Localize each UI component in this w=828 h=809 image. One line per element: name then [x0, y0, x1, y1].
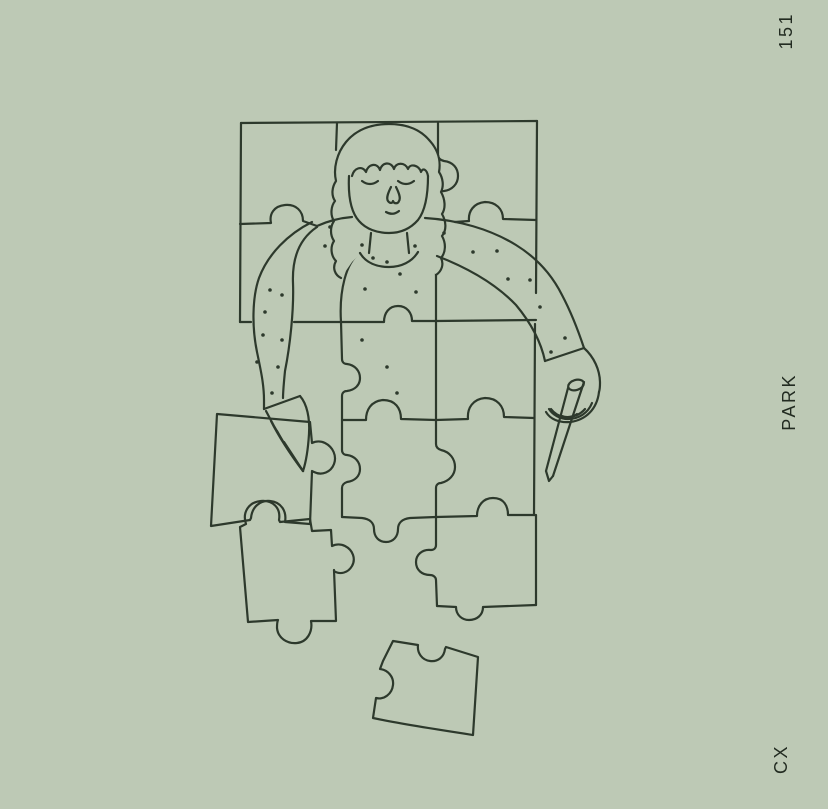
- left-arm-outer: [253, 222, 312, 409]
- pencil-shaft-left: [546, 388, 568, 471]
- lower-row-divider-knobs: [342, 498, 535, 542]
- park-label: PARK: [780, 373, 798, 431]
- page-number-label: 151: [777, 12, 795, 50]
- right-finger-4: [562, 414, 577, 417]
- puzzle-row-divider-left: [240, 205, 317, 226]
- left-arm-inner: [283, 227, 317, 398]
- piece-being-placed: [211, 414, 335, 526]
- left-finger-4: [284, 442, 303, 471]
- loose-puzzle-pieces: [211, 414, 478, 735]
- puzzle-illustration: [0, 0, 828, 809]
- puzzle-right-edge-lower: [534, 324, 535, 515]
- cx-monogram-label: CX: [772, 744, 790, 774]
- puzzle-middle-pieces: [341, 253, 536, 620]
- loose-piece-tilted: [373, 641, 478, 735]
- book-page: 151 PARK CX: [0, 0, 828, 809]
- middle-row-divider-knobs: [342, 398, 534, 420]
- right-arm-inner: [437, 256, 545, 361]
- right-hand-back: [584, 348, 600, 392]
- puzzle-left-edge: [240, 123, 241, 322]
- chest-row-divider-knob: [341, 306, 536, 322]
- puzzle-row-divider-right: [455, 202, 536, 222]
- pencil-tip: [546, 471, 553, 481]
- collar: [360, 252, 418, 267]
- bottom-right-piece-bottom-knob: [437, 605, 536, 620]
- puzzle-top-edge: [241, 121, 537, 123]
- bottom-right-piece-left-edge: [416, 517, 437, 606]
- puzzle-right-edge-upper: [536, 121, 537, 293]
- right-cuff: [545, 348, 584, 361]
- puzzle-divider-col1: [336, 123, 337, 150]
- right-arm-outer: [425, 218, 584, 348]
- figure-head: [331, 124, 445, 278]
- left-hand-back: [300, 396, 309, 471]
